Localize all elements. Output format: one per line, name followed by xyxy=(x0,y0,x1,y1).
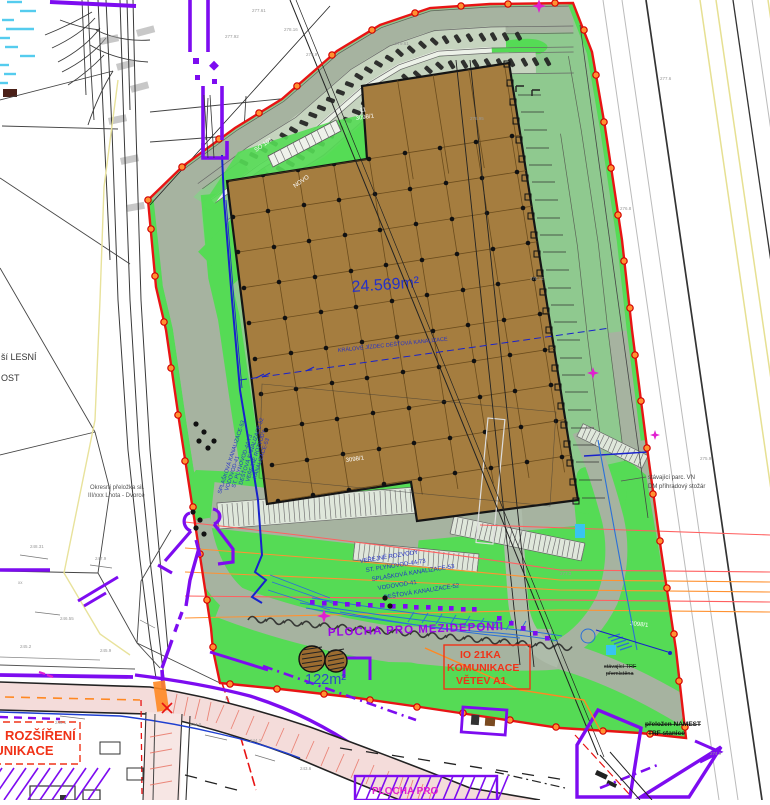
svg-text:OST: OST xyxy=(1,373,20,383)
svg-text:VĚTEV A1: VĚTEV A1 xyxy=(456,674,507,687)
svg-text:274.9: 274.9 xyxy=(710,751,722,756)
svg-text:275.9: 275.9 xyxy=(700,456,712,461)
svg-text:přemístěna: přemístěna xyxy=(606,671,634,677)
svg-text:stávající TRF: stávající TRF xyxy=(604,664,637,670)
svg-text:PLOCHA PRO: PLOCHA PRO xyxy=(372,786,439,797)
svg-text:277.3: 277.3 xyxy=(560,571,572,576)
svg-text:247.9: 247.9 xyxy=(95,556,107,561)
svg-text:244.8: 244.8 xyxy=(190,722,202,727)
svg-text:245.9: 245.9 xyxy=(100,648,112,653)
svg-text:122m²: 122m² xyxy=(305,672,346,688)
svg-text:278.95: 278.95 xyxy=(470,116,484,121)
svg-text:přeložen NAMEST: přeložen NAMEST xyxy=(645,721,701,728)
svg-text:248.31: 248.31 xyxy=(30,544,44,549)
svg-text:279.61: 279.61 xyxy=(395,41,409,46)
svg-text:DM příhradový stožár: DM příhradový stožár xyxy=(648,484,705,490)
svg-text:TRF stanice: TRF stanice xyxy=(648,730,685,737)
svg-text:277.6: 277.6 xyxy=(660,76,672,81)
svg-text:KOMUNIKACE: KOMUNIKACE xyxy=(0,743,54,758)
svg-text:245.1: 245.1 xyxy=(55,720,67,725)
svg-text:IO 21KA: IO 21KA xyxy=(460,649,501,661)
svg-text:278.12: 278.12 xyxy=(530,276,544,281)
svg-text:stávající parc. VN: stávající parc. VN xyxy=(648,475,695,481)
svg-text:III/xxx Lhota - Dvorce: III/xxx Lhota - Dvorce xyxy=(88,493,145,499)
svg-text:276.8: 276.8 xyxy=(620,206,632,211)
svg-text:xx: xx xyxy=(18,580,23,585)
svg-text:277.92: 277.92 xyxy=(225,34,239,39)
svg-text:xx: xx xyxy=(225,696,230,701)
svg-text:277.61: 277.61 xyxy=(252,8,266,13)
svg-text:246.55: 246.55 xyxy=(60,616,74,621)
svg-text:ROZŠÍŘENÍ: ROZŠÍŘENÍ xyxy=(5,728,76,743)
svg-text:ší LESNÍ: ší LESNÍ xyxy=(1,352,37,362)
svg-text:278.16: 278.16 xyxy=(284,27,298,32)
svg-text:Okresní přeložka sil.: Okresní přeložka sil. xyxy=(90,485,145,491)
svg-text:245.2: 245.2 xyxy=(20,644,32,649)
svg-text:244.1: 244.1 xyxy=(250,738,262,743)
svg-text:243.6: 243.6 xyxy=(300,766,312,771)
svg-text:KOMUNIKACE: KOMUNIKACE xyxy=(447,662,519,674)
svg-text:278.9: 278.9 xyxy=(306,52,318,57)
